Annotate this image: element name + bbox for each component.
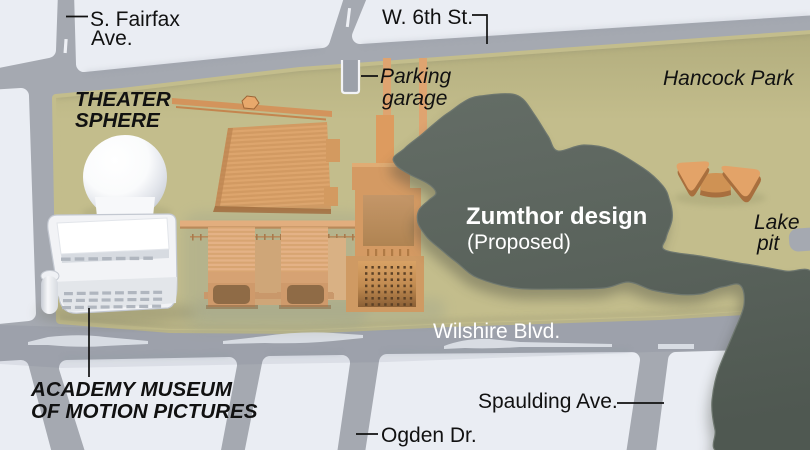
svg-text:Ogden Dr.: Ogden Dr.: [381, 424, 477, 447]
svg-text:(Proposed): (Proposed): [467, 231, 571, 254]
svg-text:SPHERE: SPHERE: [75, 109, 161, 132]
svg-text:garage: garage: [382, 87, 447, 110]
svg-text:pit: pit: [756, 232, 780, 255]
svg-text:Wilshire Blvd.: Wilshire Blvd.: [433, 320, 560, 343]
svg-text:Parking: Parking: [380, 65, 452, 88]
svg-text:Spaulding Ave.: Spaulding Ave.: [478, 390, 618, 413]
svg-text:OF MOTION PICTURES: OF MOTION PICTURES: [31, 400, 258, 423]
svg-text:W. 6th St.: W. 6th St.: [382, 6, 473, 29]
svg-text:ACADEMY MUSEUM: ACADEMY MUSEUM: [30, 378, 233, 401]
svg-text:Ave.: Ave.: [91, 27, 133, 50]
svg-text:Lake: Lake: [754, 211, 800, 234]
svg-text:Hancock Park: Hancock Park: [663, 67, 795, 90]
svg-text:THEATER: THEATER: [75, 88, 171, 111]
svg-text:Zumthor design: Zumthor design: [466, 203, 647, 230]
